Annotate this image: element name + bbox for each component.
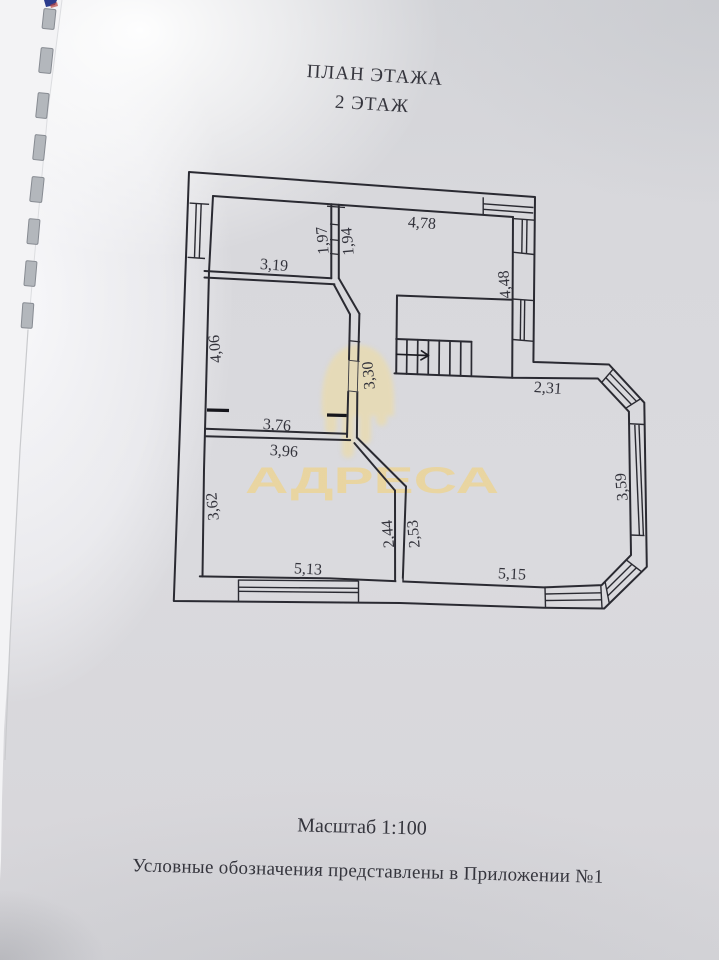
svg-text:АДРЕСА: АДРЕСА [245,460,499,501]
svg-text:3,62: 3,62 [203,492,222,521]
svg-text:4,78: 4,78 [407,214,436,233]
svg-text:3,30: 3,30 [359,361,378,390]
svg-text:2,53: 2,53 [404,519,423,548]
svg-text:2,44: 2,44 [379,519,398,548]
svg-text:4,06: 4,06 [206,334,225,363]
svg-text:3,76: 3,76 [262,416,291,435]
svg-text:3,19: 3,19 [259,256,288,275]
svg-text:2 ЭТАЖ: 2 ЭТАЖ [334,92,409,117]
svg-text:3,96: 3,96 [269,442,298,461]
svg-text:Масштаб 1:100: Масштаб 1:100 [297,814,427,839]
svg-text:1,97: 1,97 [313,226,332,255]
svg-text:1,94: 1,94 [338,227,357,256]
svg-text:ПЛАН ЭТАЖА: ПЛАН ЭТАЖА [306,61,443,90]
svg-text:4,48: 4,48 [495,270,514,299]
svg-text:3,59: 3,59 [612,472,631,501]
svg-text:Условные обозначения представл: Условные обозначения представлены в Прил… [132,855,604,888]
svg-text:2,31: 2,31 [533,379,562,398]
svg-text:5,13: 5,13 [294,560,323,578]
svg-text:5,15: 5,15 [498,565,527,583]
